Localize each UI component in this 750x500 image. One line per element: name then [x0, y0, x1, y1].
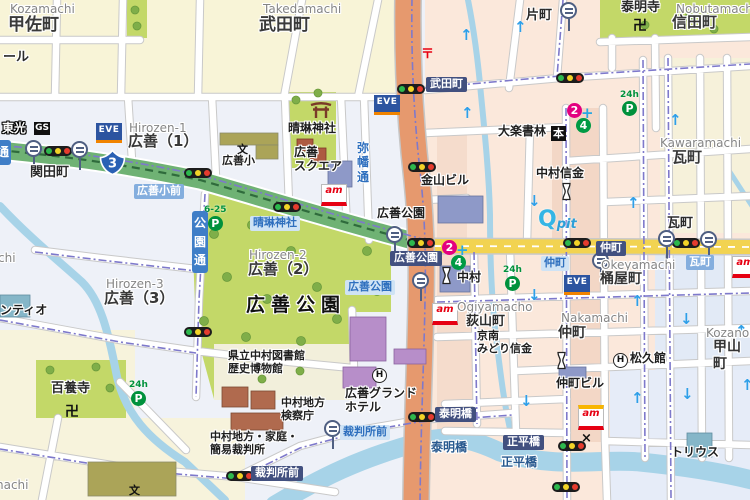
gas-station-icon: GS — [34, 122, 50, 135]
bus-stop-icon — [412, 272, 429, 301]
traffic-light-icon — [552, 482, 580, 492]
map-canvas[interactable]: Kozamachi甲佐町Takedamachi武田町Nobutamachi信田町… — [0, 0, 750, 500]
bus-stop-icon — [324, 420, 341, 449]
traffic-light-icon — [408, 412, 436, 422]
district-area — [660, 58, 750, 233]
ampm-store-logo: am — [578, 405, 604, 430]
intersection-name-box: 広善公園 — [390, 251, 442, 266]
school-icon: 文 — [129, 482, 140, 498]
intersection-name-box: 泰明橋 — [435, 407, 476, 422]
one-way-arrow-icon: ↑ — [514, 20, 527, 35]
street-name-label: 弥 幡 通 — [356, 141, 370, 184]
one-way-arrow-icon: ↓ — [680, 312, 693, 327]
ampm-store-logo: am — [321, 184, 347, 206]
bus-stop-icon — [592, 252, 609, 281]
one-way-arrow-icon: ↓ — [520, 394, 533, 409]
bus-stop-label: 晴琳神社 — [250, 216, 300, 231]
bus-stop-icon — [658, 230, 675, 259]
svg-text:3: 3 — [108, 157, 117, 172]
intersection-name-box: 仲町 — [596, 241, 626, 256]
one-way-arrow-icon: ↑ — [741, 378, 750, 393]
qpit-logo: Qpit — [538, 209, 577, 232]
qpit-q: Q — [538, 209, 557, 231]
clinic-numbers-icon: 2+4 — [442, 240, 472, 272]
ampm-store-logo: am — [432, 303, 458, 325]
one-way-arrow-icon: ↑ — [735, 324, 748, 339]
street-name-label: 通 — [0, 140, 11, 165]
bus-stop-label: 瓦町 — [686, 255, 714, 270]
intersection-name-box: 正平橋 — [503, 435, 544, 450]
bookstore-icon: 本 — [551, 126, 566, 141]
bus-stop-label: 裁判所前 — [340, 425, 390, 440]
eve-store-logo: EVE — [564, 275, 590, 295]
eve-store-logo: EVE — [374, 95, 400, 115]
bus-stop-icon — [71, 141, 88, 170]
parking-icon: 24hP — [503, 266, 522, 291]
intersection-name-box: 武田町 — [426, 77, 467, 92]
traffic-light-icon — [184, 327, 212, 337]
parking-icon: 24hP — [129, 381, 148, 406]
traffic-light-icon — [563, 238, 591, 248]
traffic-light-icon — [273, 202, 301, 212]
bus-stop-label: 広善公園 — [345, 280, 395, 295]
police-box-icon: × — [581, 431, 592, 446]
traffic-light-icon — [44, 146, 72, 156]
post-office-icon: 〒 — [421, 43, 434, 62]
eve-store-logo: EVE — [96, 123, 122, 143]
bus-stop-icon — [560, 2, 577, 31]
qpit-pit: pit — [557, 217, 577, 232]
one-way-arrow-icon: ↓ — [681, 387, 694, 402]
street-name-label: 公 園 通 — [192, 211, 208, 273]
traffic-light-icon — [184, 168, 212, 178]
one-way-arrow-icon: ↓ — [528, 288, 541, 303]
one-way-arrow-icon: ↑ — [461, 106, 474, 121]
traffic-light-icon — [672, 238, 700, 248]
one-way-arrow-icon: ↑ — [627, 196, 640, 211]
one-way-arrow-icon: ↓ — [528, 194, 541, 209]
intersection-name-box: 裁判所前 — [251, 466, 303, 481]
one-way-arrow-icon: ↑ — [631, 294, 644, 309]
traffic-light-icon — [408, 162, 436, 172]
traffic-light-icon — [556, 73, 584, 83]
major-road-orange — [408, 0, 422, 500]
hotel-icon: H — [372, 368, 387, 383]
traffic-light-icon — [226, 471, 254, 481]
one-way-arrow-icon: ↑ — [460, 28, 473, 43]
parking-icon: 24hP — [620, 91, 639, 116]
clinic-numbers-icon: 2+4 — [567, 103, 597, 135]
hotel-icon: H — [613, 353, 628, 368]
one-way-arrow-icon: ↑ — [631, 391, 644, 406]
bus-stop-label: 仲町 — [541, 256, 569, 271]
bus-stop-label: 広善小前 — [134, 184, 184, 199]
temple-icon: 卍 — [65, 401, 79, 421]
ampm-store-logo: am — [732, 256, 750, 278]
one-way-arrow-icon: ↑ — [669, 113, 682, 128]
commercial-strip — [437, 128, 467, 242]
temple-icon: 卍 — [633, 15, 647, 35]
bus-stop-icon — [25, 140, 42, 169]
traffic-light-icon — [397, 84, 425, 94]
school-icon: 文 — [237, 141, 248, 157]
traffic-light-icon — [407, 238, 435, 248]
